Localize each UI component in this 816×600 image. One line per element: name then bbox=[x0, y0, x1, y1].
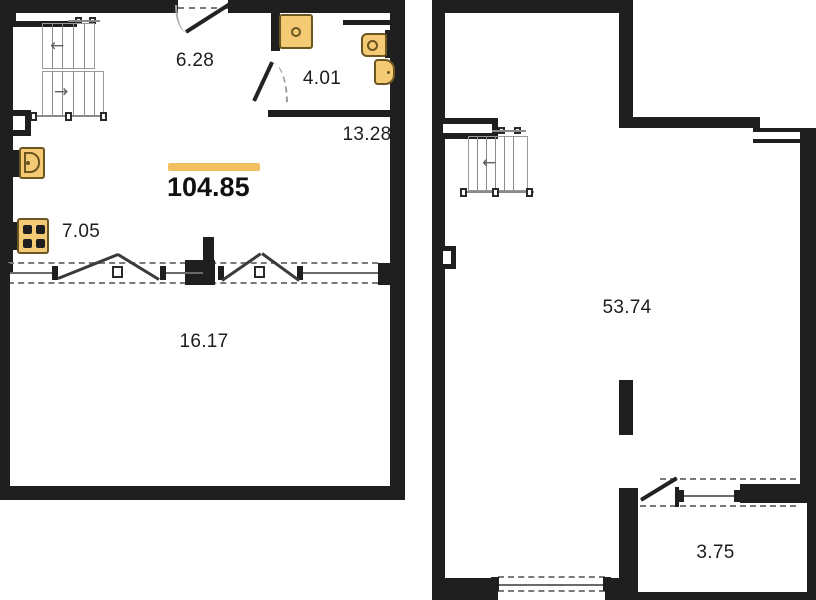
wall bbox=[0, 263, 10, 285]
floor-plan-canvas: ← → bbox=[0, 0, 816, 600]
window-glass bbox=[681, 495, 736, 497]
shaft-void bbox=[13, 116, 25, 130]
staircase-floor1: ← → bbox=[30, 14, 110, 122]
wall bbox=[0, 0, 13, 272]
wall bbox=[432, 0, 632, 13]
area-label-kitchen: 7.05 bbox=[51, 221, 111, 243]
staircase-floor2: ← bbox=[460, 126, 538, 200]
bathroom-door-arc bbox=[271, 62, 288, 102]
wall bbox=[228, 0, 397, 13]
window-post bbox=[678, 490, 684, 502]
window-handle bbox=[254, 266, 265, 278]
stair-arrow-icon: ← bbox=[482, 155, 496, 172]
wall bbox=[637, 592, 816, 600]
french-door-leaf bbox=[261, 252, 300, 281]
area-label-room-right: 13.28 bbox=[337, 124, 397, 146]
shower-icon bbox=[279, 14, 313, 49]
window-glass bbox=[10, 272, 52, 274]
wall bbox=[0, 285, 10, 490]
washbasin-icon bbox=[361, 33, 387, 57]
window-post bbox=[734, 490, 742, 502]
wall bbox=[800, 128, 816, 502]
window-dash bbox=[660, 478, 796, 480]
area-label-terrace: 16.17 bbox=[174, 331, 234, 353]
stair-arrow-up-icon: ← bbox=[50, 38, 64, 55]
wall bbox=[0, 0, 178, 13]
window-post bbox=[491, 577, 499, 591]
french-door-leaf bbox=[117, 253, 160, 281]
toilet-icon bbox=[374, 59, 395, 85]
window-frame bbox=[753, 128, 804, 132]
wall bbox=[619, 0, 633, 128]
total-area-accent-bar bbox=[168, 163, 260, 171]
wall bbox=[268, 110, 397, 117]
stove-icon bbox=[17, 218, 49, 254]
window-glass bbox=[498, 584, 605, 586]
total-area-label: 104.85 bbox=[167, 172, 250, 203]
area-label-bathroom: 4.01 bbox=[292, 68, 352, 90]
window-frame bbox=[753, 139, 804, 143]
wall bbox=[432, 578, 498, 600]
wall bbox=[740, 484, 816, 503]
area-label-main-room: 53.74 bbox=[592, 297, 662, 319]
window-dash bbox=[640, 505, 796, 507]
wall bbox=[432, 0, 445, 600]
kitchen-sink-icon bbox=[19, 147, 45, 179]
shaft-void bbox=[443, 251, 451, 264]
window-glass bbox=[303, 272, 378, 274]
window-glass bbox=[166, 272, 203, 274]
area-label-balcony: 3.75 bbox=[688, 542, 743, 564]
wall bbox=[807, 502, 816, 600]
wall bbox=[619, 117, 760, 128]
wall bbox=[619, 488, 638, 600]
window-sill bbox=[343, 20, 392, 25]
wall bbox=[378, 263, 405, 285]
area-label-hallway: 6.28 bbox=[165, 50, 225, 72]
french-door-leaf bbox=[57, 253, 118, 280]
window-dash bbox=[498, 590, 605, 592]
door-post bbox=[228, 0, 238, 13]
window-dash bbox=[498, 576, 605, 578]
stair-arrow-down-icon: → bbox=[54, 84, 68, 101]
balcony-door-leaf bbox=[640, 476, 678, 501]
window-handle bbox=[112, 266, 123, 278]
wall-stub bbox=[619, 380, 633, 435]
wall bbox=[0, 486, 405, 500]
